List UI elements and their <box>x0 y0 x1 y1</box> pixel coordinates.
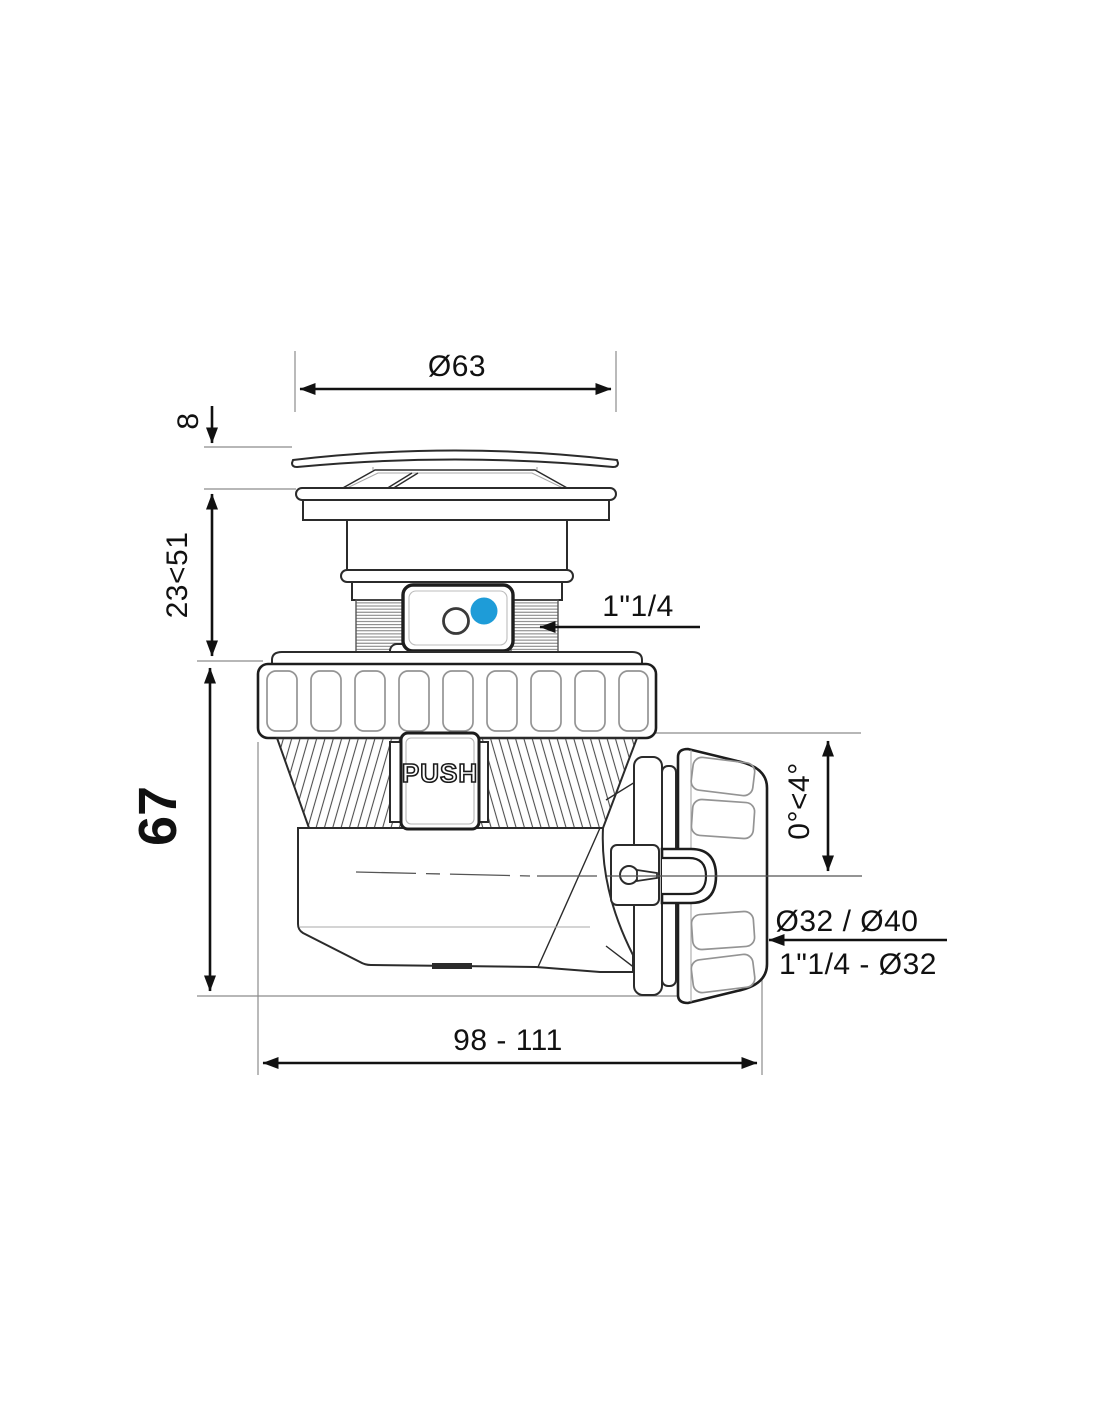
technical-drawing-canvas: PUSH Ø63 8 23<51 67 <box>0 0 1100 1422</box>
cap-dome <box>292 451 618 468</box>
nut-top-plate <box>272 652 642 664</box>
dim-cap-diameter: Ø63 <box>300 350 611 389</box>
lock-nut <box>258 652 656 738</box>
nut-band <box>258 664 656 738</box>
drain-cap <box>292 451 618 490</box>
dim-inlet-thread: 1"1/4 <box>540 590 700 627</box>
cap-diameter-label: Ø63 <box>428 350 486 383</box>
dim-outlet-angle: 0°<4° <box>783 741 828 871</box>
body-height-label: 67 <box>128 786 188 846</box>
outlet-nut-label: 1"1/4 - Ø32 <box>779 948 937 981</box>
cap-height-label: 8 <box>172 412 205 429</box>
cap-strut <box>386 473 418 489</box>
outlet-angle-label: 0°<4° <box>783 762 816 839</box>
keyhole-icon <box>620 866 638 884</box>
push-label: PUSH <box>402 758 478 788</box>
waste-flange <box>296 488 616 520</box>
flange-rim <box>296 488 616 500</box>
drawing-page: PUSH Ø63 8 23<51 67 <box>0 0 1100 1422</box>
blue-dot-icon <box>471 598 498 625</box>
adjust-range-label: 23<51 <box>161 532 194 619</box>
dim-overall-length: 98 - 111 <box>263 1024 757 1063</box>
dim-outlet-pipes: Ø32 / Ø40 1"1/4 - Ø32 <box>769 905 947 981</box>
trap-cup <box>298 828 633 972</box>
body-ring <box>341 570 573 582</box>
overall-length-label: 98 - 111 <box>453 1024 563 1057</box>
indicator-tag <box>403 585 513 651</box>
dim-adjust-range: 23<51 <box>161 494 212 656</box>
flange-body <box>303 500 609 520</box>
trap-bottom-notch <box>432 963 472 969</box>
outlined-circle-icon <box>444 609 469 634</box>
dim-cap-height: 8 <box>172 406 212 443</box>
outlet-pipes-label: Ø32 / Ø40 <box>776 905 919 938</box>
dim-body-height: 67 <box>128 668 210 991</box>
body-cylinder <box>347 520 567 570</box>
trap-body <box>298 828 633 972</box>
push-button: PUSH <box>390 733 488 829</box>
inlet-thread-label: 1"1/4 <box>602 590 674 623</box>
